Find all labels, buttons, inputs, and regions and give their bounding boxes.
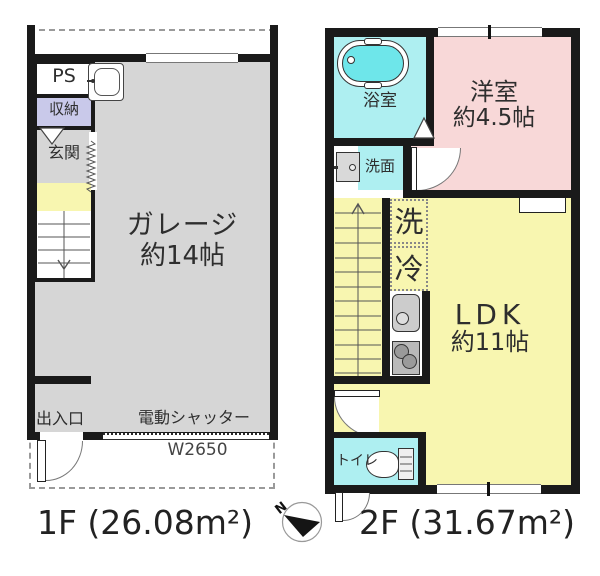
f2-area-label: 2F (31.67m²) <box>352 506 582 541</box>
f2-toilet-door-leaf <box>334 390 380 397</box>
f2-washer-space: 洗 <box>390 199 428 244</box>
f2-western-room-label: 洋室 <box>434 80 554 105</box>
f2-exterior-door-leaf <box>335 492 343 522</box>
f1-entrance-label: 玄関 <box>37 145 91 162</box>
f2-toilet-wall-right <box>418 432 426 494</box>
f2-bathroom-label: 浴室 <box>334 93 426 111</box>
f1-door-opening <box>40 432 83 441</box>
f2-ldk-size-label: 約11帖 <box>430 330 550 355</box>
f1-staircase <box>37 211 91 278</box>
f2-fridge-label: 冷 <box>392 248 426 290</box>
f1-wall-right <box>270 25 278 440</box>
f2-toilet-wall-top <box>334 432 424 438</box>
f1-shutter-width-label: W2650 <box>150 442 245 460</box>
f1-window-top <box>146 53 238 63</box>
north-compass-icon: N <box>273 499 322 541</box>
f2-bathtub-drain-icon <box>347 56 355 64</box>
f2-counter-fixture <box>519 197 566 213</box>
f2-window-bottom-mullion <box>487 482 490 496</box>
f2-washer-label: 洗 <box>392 201 426 243</box>
f2-stair-wall-right <box>382 198 390 384</box>
f2-bedroom-door-leaf <box>411 147 417 192</box>
f2-toilet-label: トイレ <box>333 454 381 469</box>
f1-wall-stub <box>33 376 91 384</box>
f2-wall-right <box>571 28 580 494</box>
f1-garage-sink-basin <box>94 68 120 96</box>
f2-washbasin-knob-icon <box>349 164 356 171</box>
f1-doorway-label: 出入口 <box>34 411 86 428</box>
f2-fridge-space: 冷 <box>390 246 428 291</box>
f2-washroom-label: 洗面 <box>357 159 403 175</box>
floor-plan-canvas: 洗 冷 <box>0 0 600 576</box>
f2-kitchen-wall-right <box>422 291 430 384</box>
f1-garage-size-label: 約14帖 <box>95 243 270 270</box>
f1-area-label: 1F (26.08m²) <box>30 506 260 541</box>
f2-ldk-label: LDK <box>430 300 550 329</box>
f2-kitchen-sink-drain-icon <box>396 312 409 325</box>
f1-ps-label: PS <box>37 67 91 87</box>
f1-entry-door-leaf <box>37 440 46 482</box>
f2-bathroom-wall-bottom <box>334 138 434 146</box>
f1-electric-shutter-band <box>103 433 269 440</box>
f1-shutter-label: 電動シャッター <box>118 410 270 427</box>
f1-wall-left <box>27 25 35 440</box>
f2-stove-burner-icon <box>402 354 417 369</box>
f2-western-room-wall-bottom <box>403 190 571 198</box>
f2-western-room-size-label: 約4.5帖 <box>424 106 564 130</box>
north-label: N <box>273 499 291 518</box>
f1-storage-label: 収納 <box>37 102 91 118</box>
f2-stair-wall-bottom <box>334 376 430 384</box>
f2-toilet-tank-icon <box>398 448 414 480</box>
f1-garage-label: ガレージ <box>95 212 270 240</box>
f2-bathtub-handle-icon <box>364 38 382 45</box>
f2-wall-left <box>325 28 334 494</box>
f1-stair-landing <box>37 183 91 211</box>
f2-window-top-mullion <box>488 25 491 39</box>
f2-bathtub-handle-icon <box>364 82 382 89</box>
